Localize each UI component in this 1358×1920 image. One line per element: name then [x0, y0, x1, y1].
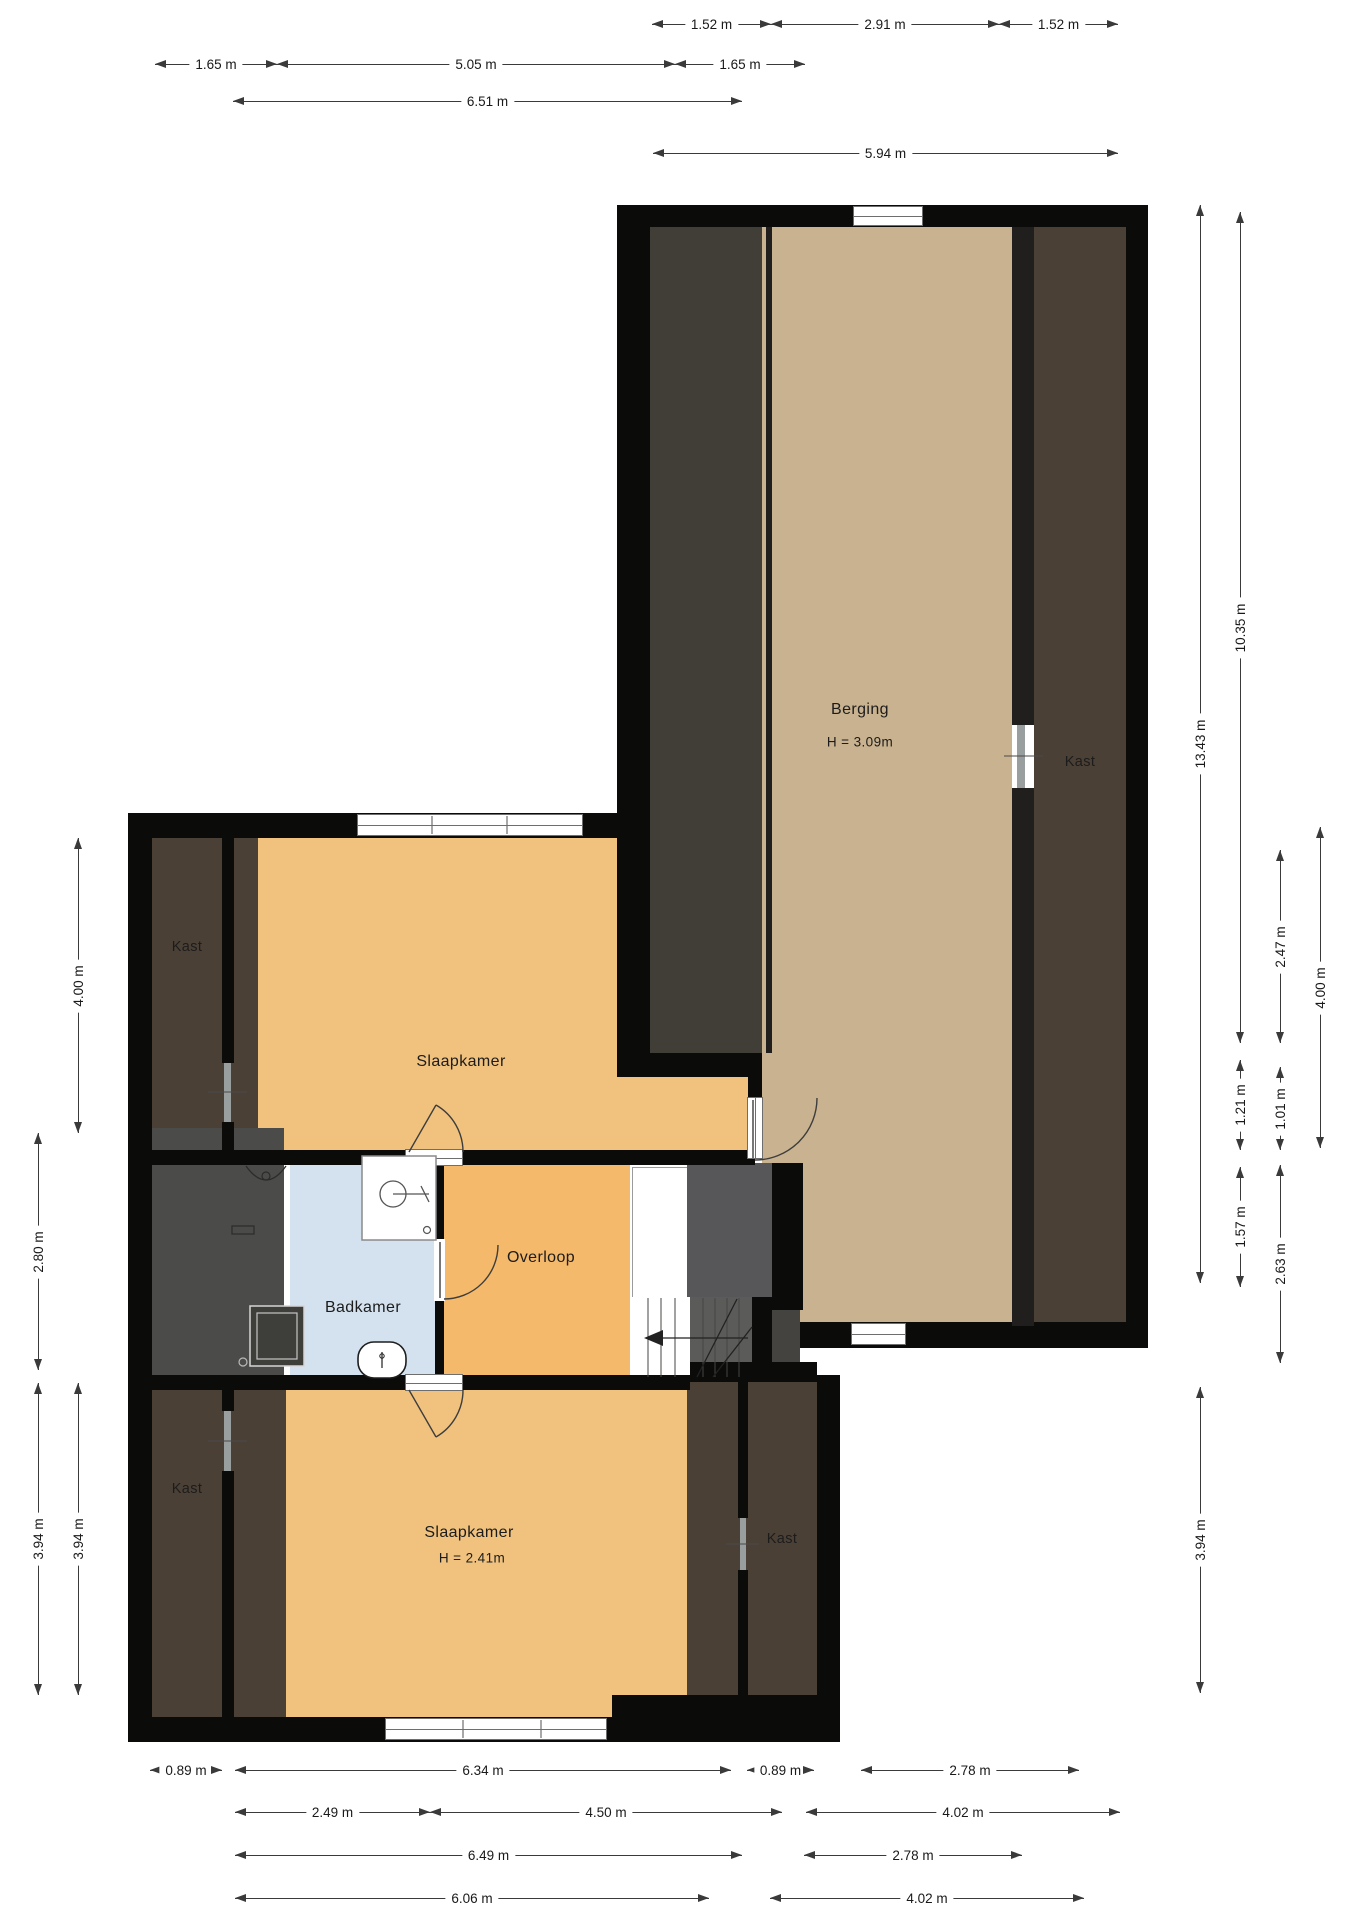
dimension-label: 0.89 m: [159, 1763, 212, 1779]
dimension-line: 2.49 m: [235, 1812, 430, 1813]
dimension-line: 1.57 m: [1240, 1167, 1241, 1287]
dimension-line: 1.52 m: [999, 24, 1118, 25]
dimension-line: 2.80 m: [38, 1133, 39, 1370]
dimension-line: 1.65 m: [155, 64, 277, 65]
dimension-line: 10.35 m: [1240, 212, 1241, 1043]
dimension-line: 2.91 m: [771, 24, 999, 25]
dimension-label: 2.91 m: [858, 17, 911, 33]
dimension-label: 1.01 m: [1273, 1082, 1289, 1135]
dimension-line: 5.94 m: [653, 153, 1118, 154]
dimension-line: 6.51 m: [233, 101, 742, 102]
dimension-label: 4.50 m: [579, 1805, 632, 1821]
dimension-label: 1.65 m: [189, 57, 242, 73]
dimension-label: 3.94 m: [31, 1512, 47, 1565]
dimension-label: 2.47 m: [1273, 920, 1289, 973]
dimension-label: 2.78 m: [886, 1848, 939, 1864]
dimension-label: 1.21 m: [1233, 1078, 1249, 1131]
dimension-line: 4.02 m: [806, 1812, 1120, 1813]
dimension-line: 3.94 m: [38, 1383, 39, 1695]
dimension-line: 2.47 m: [1280, 850, 1281, 1043]
dimension-line: 13.43 m: [1200, 205, 1201, 1283]
dimension-label: 1.52 m: [685, 17, 738, 33]
dimension-line: 1.65 m: [675, 64, 805, 65]
dimension-line: 3.94 m: [78, 1383, 79, 1695]
dimension-label: 6.06 m: [445, 1891, 498, 1907]
dimension-label: 4.02 m: [900, 1891, 953, 1907]
dimension-label: 3.94 m: [71, 1512, 87, 1565]
dimension-line: 4.00 m: [78, 838, 79, 1133]
dimension-label: 6.49 m: [462, 1848, 515, 1864]
dimension-label: 10.35 m: [1233, 597, 1249, 658]
dimension-line: 0.89 m: [150, 1770, 222, 1771]
dimension-line: 2.78 m: [804, 1855, 1022, 1856]
dimension-line: 2.78 m: [861, 1770, 1079, 1771]
dimension-label: 5.94 m: [859, 146, 912, 162]
dimension-label: 6.51 m: [461, 94, 514, 110]
dimensions-layer: 1.52 m2.91 m1.52 m1.65 m5.05 m1.65 m6.51…: [0, 0, 1358, 1920]
dimension-line: 4.02 m: [770, 1898, 1084, 1899]
dimension-line: 1.52 m: [652, 24, 771, 25]
dimension-line: 6.34 m: [235, 1770, 731, 1771]
dimension-line: 4.50 m: [430, 1812, 782, 1813]
dimension-line: 0.89 m: [747, 1770, 814, 1771]
dimension-label: 13.43 m: [1193, 714, 1209, 775]
dimension-line: 1.01 m: [1280, 1067, 1281, 1150]
dimension-label: 0.89 m: [754, 1763, 807, 1779]
dimension-label: 6.34 m: [456, 1763, 509, 1779]
dimension-label: 4.00 m: [1313, 961, 1329, 1014]
dimension-line: 4.00 m: [1320, 827, 1321, 1148]
dimension-line: 5.05 m: [277, 64, 675, 65]
dimension-label: 1.52 m: [1032, 17, 1085, 33]
dimension-label: 3.94 m: [1193, 1513, 1209, 1566]
dimension-label: 1.65 m: [713, 57, 766, 73]
dimension-line: 6.49 m: [235, 1855, 742, 1856]
dimension-label: 2.78 m: [943, 1763, 996, 1779]
dimension-label: 2.80 m: [31, 1225, 47, 1278]
dimension-label: 4.02 m: [936, 1805, 989, 1821]
dimension-line: 2.63 m: [1280, 1165, 1281, 1363]
floor-plan: Berging H = 3.09m Kast Kast Slaapkamer B…: [0, 0, 1358, 1920]
dimension-label: 2.63 m: [1273, 1237, 1289, 1290]
dimension-label: 2.49 m: [306, 1805, 359, 1821]
dimension-line: 6.06 m: [235, 1898, 709, 1899]
dimension-label: 1.57 m: [1233, 1200, 1249, 1253]
dimension-line: 3.94 m: [1200, 1387, 1201, 1693]
dimension-label: 4.00 m: [71, 959, 87, 1012]
dimension-label: 5.05 m: [449, 57, 502, 73]
dimension-line: 1.21 m: [1240, 1060, 1241, 1150]
